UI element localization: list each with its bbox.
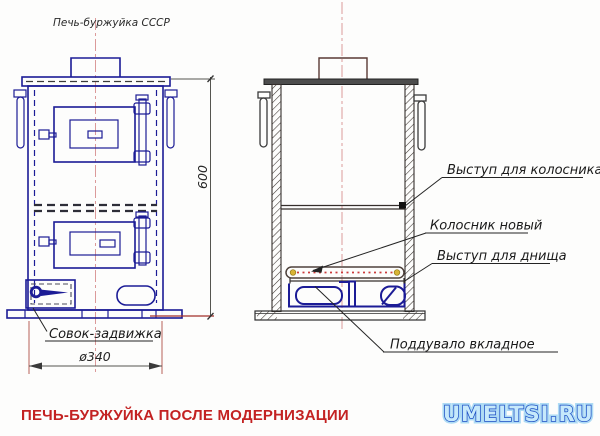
side-handle-right [414,95,426,150]
upper-door [39,95,150,165]
stove-technical-drawing: 600 ø340 [0,0,600,436]
drawing-title: Печь-буржуйка СССР [53,17,170,29]
watermark-logo: UMELTSI.RU UMELTSI.RU [443,402,594,426]
wall-section-left [272,85,281,312]
door-handle [88,131,102,138]
callout-bottom-ledge: Выступ для днища [437,249,567,264]
new-grate [286,267,404,278]
left-stove-front-view [7,18,182,372]
lower-door [39,212,150,268]
height-dimension-label: 600 [195,165,210,189]
right-stove-section-view [255,2,426,330]
scoop-icon [31,287,41,297]
callout-new-grate: Колосник новый [430,219,542,234]
side-handle-left [14,90,26,148]
hinge-bar [139,99,146,165]
diameter-dimension-label: ø340 [78,349,111,364]
page-caption: ПЕЧЬ-БУРЖУЙКА ПОСЛЕ МОДЕРНИЗАЦИИ [21,406,349,424]
callout-grate-ledge: Выступ для колосника [447,163,600,178]
side-handle-left [258,92,270,147]
callout-ash-pit-insert: Поддувало вкладное [390,338,535,353]
base-plate-section [255,311,425,320]
watermark-text: UMELTSI.RU [443,402,594,426]
door-latch [39,130,49,139]
side-handle-right [165,90,177,148]
grate-ledge [281,202,406,209]
vent-capsule [117,286,155,305]
top-plate-section [264,79,418,85]
door-handle [100,240,115,247]
ash-pit-insert [289,282,405,307]
base-plate [7,310,182,318]
scoop-compartment [26,280,75,308]
hinge-bar [139,216,146,265]
scanned-drawing-page: 600 ø340 [0,0,600,436]
chimney-stub [319,58,367,79]
door-latch [39,237,49,246]
callouts: Совок-задвижка Выступ для колосника Коло… [33,163,600,353]
callout-scoop-damper: Совок-задвижка [49,327,162,342]
